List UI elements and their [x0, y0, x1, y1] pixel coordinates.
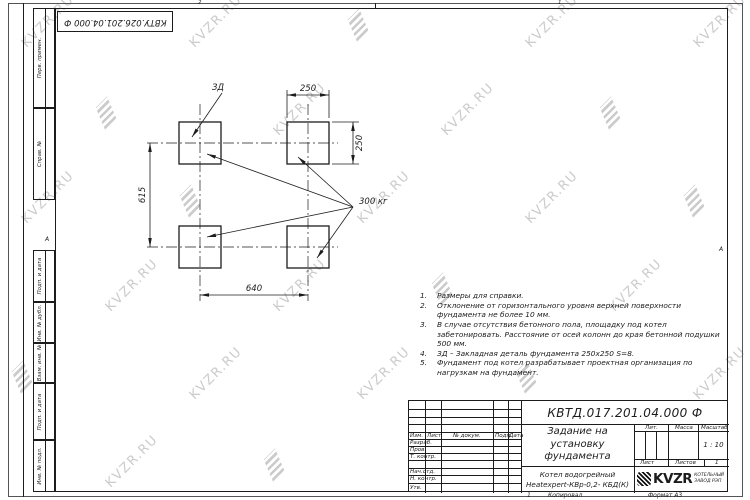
note-number: 2. — [420, 301, 437, 320]
load-label: 300 кг — [359, 197, 388, 207]
document-title-line2: фундамента — [544, 451, 610, 464]
mass-label: Масса — [675, 425, 693, 431]
dim-250-right: 250 — [355, 135, 365, 151]
kvzr-logo-text: KVZR — [653, 471, 692, 487]
arrowhead — [351, 122, 355, 131]
note-item: 2. Отклонение от горизонтального уровня … — [420, 301, 728, 320]
title-block: Изм. Лист № докум. Подп. Дата Разраб. Пр… — [408, 400, 728, 492]
note-number: 1. — [420, 291, 437, 301]
arrowhead — [317, 250, 324, 258]
arrowhead — [192, 129, 199, 137]
col-docnum: № докум. — [453, 433, 481, 439]
product-line2: Heatexpert-КВр-0,2- КБД(К) — [526, 480, 629, 490]
arrowhead — [148, 143, 152, 152]
product-line1: Котел водогрейный — [540, 470, 615, 480]
note-number: 3. — [420, 320, 437, 349]
row-utv: Утв. — [410, 485, 422, 491]
row-razrab: Разраб. — [410, 440, 432, 446]
row-prov: Пров. — [410, 447, 426, 453]
arrowhead — [148, 238, 152, 247]
row-n-kontr: Н. контр. — [410, 476, 437, 482]
note-item: 1. Размеры для справки. — [420, 291, 728, 301]
document-title-line1: Задание на установку — [521, 426, 634, 451]
note-item: 4. ЗД – Закладная деталь фундамента 250х… — [420, 349, 728, 359]
note-text: Размеры для справки. — [437, 291, 728, 301]
drawing-sheet: KVZR.RUKVZR.RUKVZR.RUKVZR.RUKVZR.RUKVZR.… — [0, 0, 750, 500]
organization-cell: KVZR КОТЕЛЬНЫЙ ЗАВОД РЭП — [634, 466, 727, 491]
organization-name: КОТЕЛЬНЫЙ ЗАВОД РЭП — [694, 473, 724, 484]
arrowhead — [299, 293, 308, 297]
document-title: Задание на установку фундамента — [521, 424, 634, 466]
embed-detail-label: ЗД — [212, 83, 224, 93]
organization-name-line1: КОТЕЛЬНЫЙ — [694, 473, 724, 479]
note-number: 4. — [420, 349, 437, 359]
dim-615-left: 615 — [138, 187, 148, 203]
arrowhead — [320, 93, 329, 97]
notes-list: 1. Размеры для справки. 2. Отклонение от… — [420, 291, 728, 378]
arrowhead — [207, 154, 216, 159]
document-designation: КВТД.017.201.04.000 Ф — [521, 401, 729, 424]
col-list: Лист — [427, 433, 441, 439]
arrowhead — [351, 155, 355, 164]
scale-value: 1 : 10 — [698, 431, 729, 459]
organization-name-line2: ЗАВОД РЭП — [694, 479, 724, 485]
arrowhead — [207, 233, 216, 237]
note-text: Отклонение от горизонтального уровня вер… — [437, 301, 728, 320]
dim-640-bottom: 640 — [246, 284, 262, 294]
arrowhead — [287, 93, 296, 97]
note-item: 5. Фундамент под котел разрабатывает про… — [420, 358, 728, 377]
note-number: 5. — [420, 358, 437, 377]
dim-250-top: 250 — [300, 84, 316, 94]
col-izm: Изм. — [410, 433, 423, 439]
kvzr-logo-icon — [637, 472, 651, 486]
arrowhead — [200, 293, 209, 297]
row-nach-otd: Нач.отд. — [410, 469, 435, 475]
lit-label: Лит. — [645, 425, 658, 431]
product-name: Котел водогрейный Heatexpert-КВр-0,2- КБ… — [521, 466, 634, 493]
note-text: В случае отсутствия бетонного пола, площ… — [437, 320, 728, 349]
row-t-kontr: Т. контр. — [410, 454, 436, 460]
note-text: Фундамент под котел разрабатывает проект… — [437, 358, 728, 377]
note-text: ЗД – Закладная деталь фундамента 250х250… — [437, 349, 728, 359]
note-item: 3. В случае отсутствия бетонного пола, п… — [420, 320, 728, 349]
